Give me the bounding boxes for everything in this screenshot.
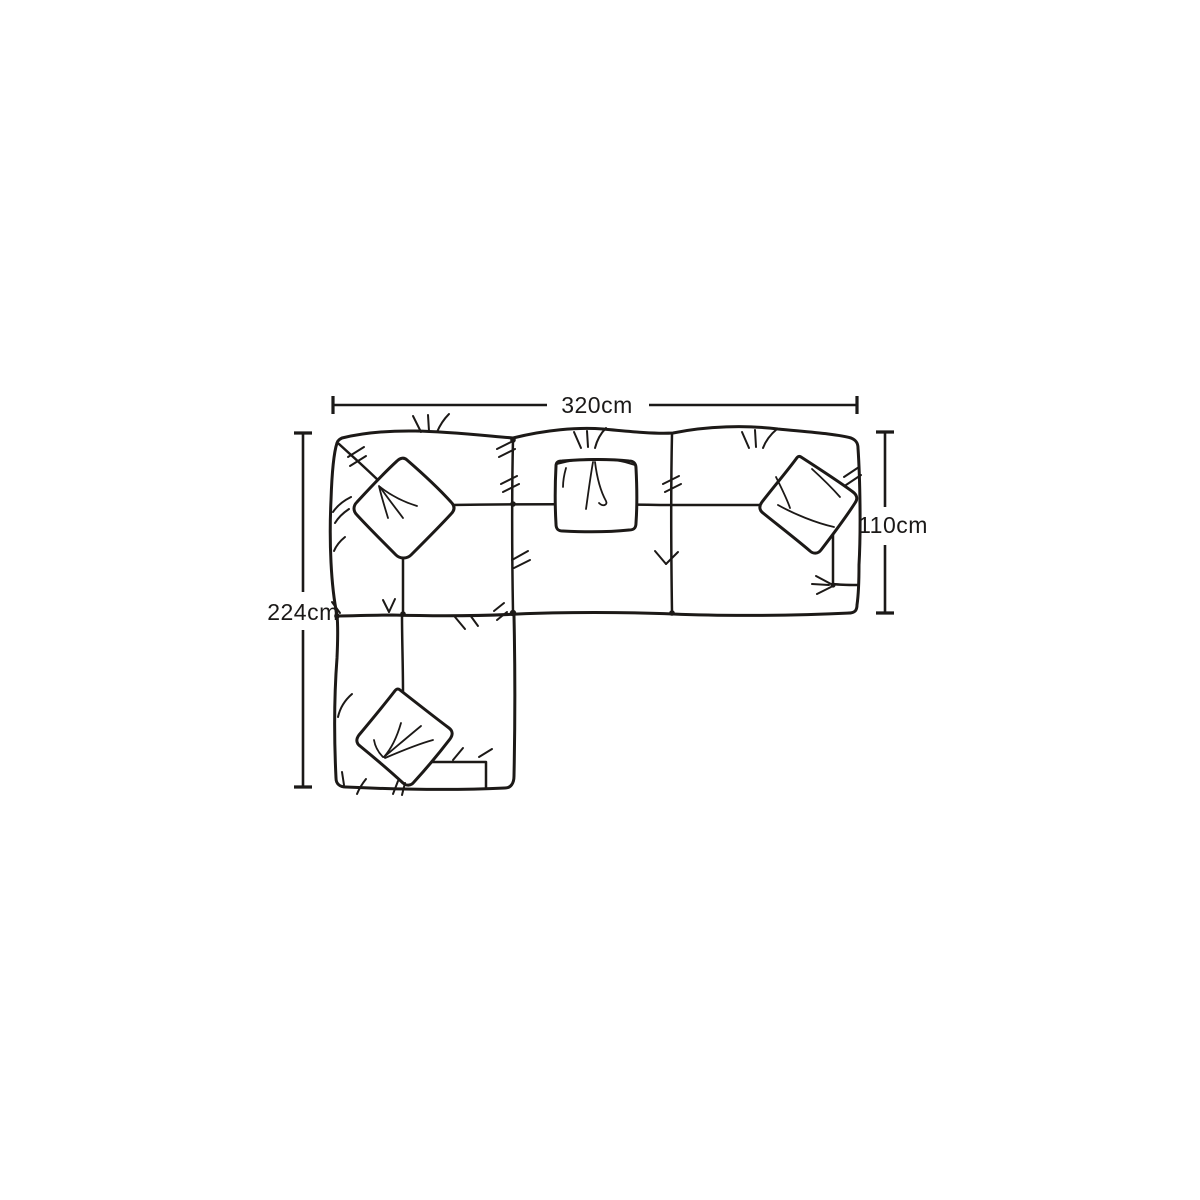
stitch-mark	[342, 772, 344, 785]
stitch-mark	[383, 600, 389, 612]
stitch-mark	[503, 484, 519, 492]
overall-depth-dimension: 224cm	[267, 433, 339, 787]
stitch-mark	[816, 576, 831, 584]
stitch-mark	[742, 432, 749, 448]
scatter-cushion-right	[760, 456, 857, 553]
stitch-mark	[479, 749, 492, 757]
seam-junction	[510, 501, 516, 507]
sofa-top-view-diagram: 320cm 224cm 110cm	[0, 0, 1200, 1200]
stitch-mark	[494, 603, 504, 611]
sofa-depth-dimension-label: 110cm	[858, 512, 928, 538]
chaise-step-seam	[425, 762, 486, 788]
stitch-mark	[453, 748, 463, 760]
stitch-mark	[501, 476, 517, 484]
cushion-outline	[760, 456, 857, 553]
stitch-mark	[512, 551, 528, 560]
stitch-mark	[587, 431, 588, 447]
stitch-mark	[428, 415, 429, 431]
width-dimension: 320cm	[333, 392, 857, 418]
overall-depth-dimension-label: 224cm	[267, 599, 339, 625]
sofa-depth-dimension: 110cm	[858, 432, 928, 613]
stitch-mark	[755, 430, 756, 447]
stitch-mark	[812, 584, 829, 585]
seam-vertical-right	[671, 434, 672, 612]
scatter-cushion-chaise	[357, 689, 452, 785]
stitch-mark	[574, 432, 581, 448]
stitch-mark	[455, 617, 465, 629]
seam-junction	[400, 611, 406, 617]
stitch-mark	[844, 467, 859, 477]
seam-vertical-left	[512, 439, 513, 612]
stitch-mark	[335, 509, 349, 523]
stitch-mark	[763, 429, 777, 448]
stitch-mark	[655, 551, 666, 564]
seam-junction	[830, 582, 835, 587]
stitch-mark	[817, 587, 831, 594]
cushion-outline	[357, 689, 452, 785]
stitch-mark	[437, 414, 449, 432]
stitch-mark	[389, 599, 395, 612]
stitch-mark	[514, 560, 530, 568]
seam-junction	[669, 610, 675, 616]
seat-front-seam	[337, 613, 850, 617]
stitch-mark	[334, 537, 345, 551]
seam-junction	[510, 437, 516, 443]
stitch-mark	[338, 694, 352, 717]
scatter-cushion-middle	[555, 459, 637, 532]
chaise-seam	[402, 616, 403, 692]
stitch-mark	[497, 441, 513, 449]
seam-junction	[510, 610, 516, 616]
sofa-dimension-diagram-canvas: 320cm 224cm 110cm	[0, 0, 1200, 1200]
stitch-mark	[348, 447, 364, 457]
stitch-mark	[595, 428, 606, 448]
width-dimension-label: 320cm	[561, 392, 633, 418]
stitch-mark	[665, 484, 681, 492]
